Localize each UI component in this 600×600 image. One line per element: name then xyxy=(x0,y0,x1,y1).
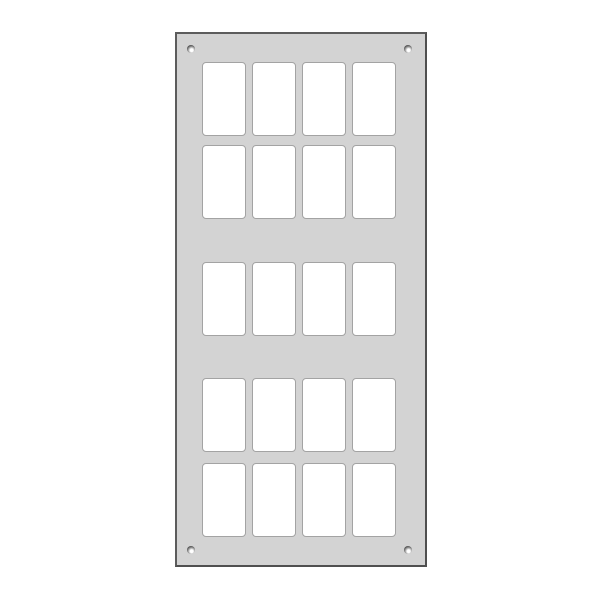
cutout-opening xyxy=(202,378,246,452)
cutout-opening xyxy=(252,145,296,219)
switch-panel-plate xyxy=(175,32,427,567)
cutout-opening xyxy=(252,262,296,336)
page-background xyxy=(0,0,600,600)
cutout-opening xyxy=(302,145,346,219)
cutout-opening xyxy=(352,62,396,136)
cutout-opening xyxy=(252,62,296,136)
cutout-opening xyxy=(252,463,296,537)
cutout-opening xyxy=(302,262,346,336)
cutout-opening xyxy=(302,378,346,452)
cutout-opening xyxy=(302,62,346,136)
cutout-opening xyxy=(302,463,346,537)
cutout-opening xyxy=(352,262,396,336)
cutout-opening xyxy=(202,262,246,336)
cutout-opening xyxy=(352,378,396,452)
cutout-opening xyxy=(352,463,396,537)
cutout-opening xyxy=(202,62,246,136)
cutout-opening xyxy=(252,378,296,452)
cutout-opening xyxy=(202,145,246,219)
cutout-opening xyxy=(202,463,246,537)
cutout-grid xyxy=(177,34,425,565)
cutout-opening xyxy=(352,145,396,219)
